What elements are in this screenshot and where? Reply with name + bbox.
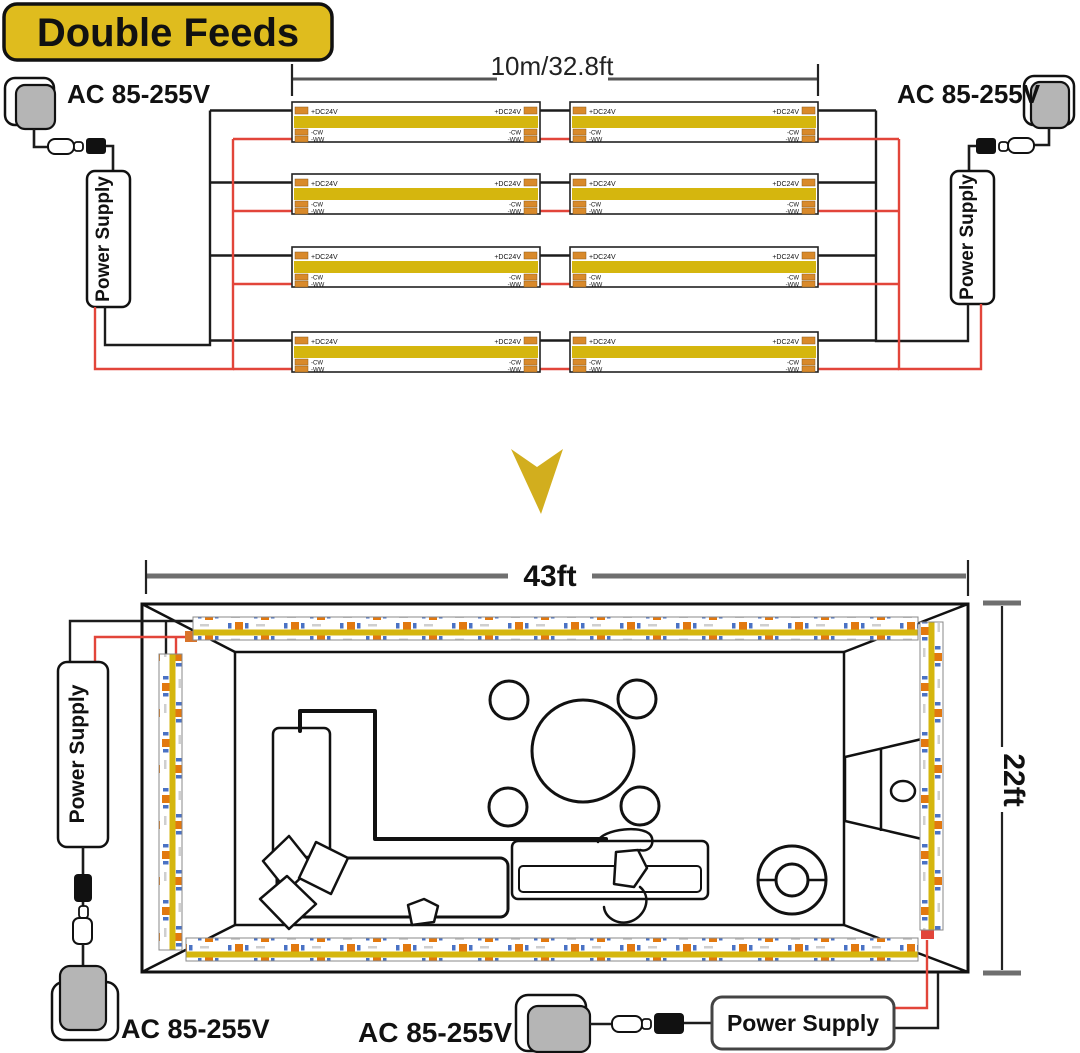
power-supply-bottom: Power Supply <box>712 997 894 1049</box>
dining-table <box>532 700 634 802</box>
power-supply-label-room-left: Power Supply <box>66 684 89 823</box>
led-strip-row4-left <box>292 332 540 374</box>
led-strip-row2-right <box>570 174 818 216</box>
dining-chair <box>621 787 659 825</box>
dining-chair <box>489 788 527 826</box>
power-supply-room-left: Power Supply <box>58 662 108 847</box>
power-supply-top-right: Power Supply <box>951 171 994 304</box>
dc-connector-bottom-center <box>590 1013 712 1034</box>
power-supply-top-left: Power Supply <box>87 171 130 307</box>
ac-adapter-icon-bottom-left <box>52 966 118 1040</box>
ac-voltage-label-bottom-left: AC 85-255V <box>121 1014 270 1044</box>
led-strip-row4-right <box>570 332 818 374</box>
room-width-dimension: 43ft <box>146 560 968 596</box>
right-wall-door <box>845 739 922 839</box>
led-strip-row1-left <box>292 102 540 144</box>
door-knob-icon <box>891 781 915 801</box>
led-strip-right-wall <box>920 622 943 930</box>
led-strip-row3-left <box>292 247 540 289</box>
tv-bench-inner <box>519 866 701 892</box>
strip-joint-wires <box>540 111 570 370</box>
led-strip-bottom-wall <box>186 938 918 961</box>
dimension-label-strip-length: 10m/32.8ft <box>491 51 615 81</box>
title-badge: Double Feeds <box>4 4 332 60</box>
dc-connector-top-right <box>969 128 1049 171</box>
led-strip-left-wall <box>159 654 182 950</box>
ac-voltage-label-top-right: AC 85-255V <box>897 79 1041 109</box>
room-furniture <box>260 680 826 929</box>
dining-chair <box>618 680 656 718</box>
strip-length-dimension: 10m/32.8ft <box>292 51 818 96</box>
power-supply-label-top-right: Power Supply <box>957 174 978 300</box>
diagram-canvas: +DC24V +DC24V -CW -WW -CW -WW <box>0 0 1080 1053</box>
round-ottoman <box>758 846 826 914</box>
power-supply-label-top-left: Power Supply <box>93 176 114 302</box>
ac-voltage-label-bottom-center: AC 85-255V <box>358 1017 512 1048</box>
room-installation-diagram: 43ft 22ft <box>52 560 1030 1052</box>
led-strip-row2-left <box>292 174 540 216</box>
ac-adapter-icon-bottom-center <box>516 995 590 1052</box>
top-wiring-diagram: 10m/32.8ft AC 85-255V Power Supply AC 85… <box>5 51 1074 374</box>
led-strip-top-wall <box>193 617 918 640</box>
ac-adapter-icon-top-left <box>5 78 55 129</box>
dining-chair <box>490 681 528 719</box>
dc-connector-bottom-left <box>73 847 92 967</box>
ac-voltage-label-top-left: AC 85-255V <box>67 79 211 109</box>
led-strip-wiring-diagram: +DC24V +DC24V -CW -WW -CW -WW <box>0 0 1080 1053</box>
led-strip-row1-right <box>570 102 818 144</box>
cabinet <box>273 728 330 857</box>
power-supply-label-bottom: Power Supply <box>727 1010 879 1036</box>
dimension-label-room-depth: 22ft <box>997 753 1030 806</box>
small-crumple <box>408 899 438 925</box>
dimension-label-room-width: 43ft <box>523 560 576 593</box>
title-text: Double Feeds <box>37 11 299 55</box>
dc-connector-top-left <box>34 129 113 171</box>
down-arrow-icon <box>511 449 563 514</box>
led-strip-row3-right <box>570 247 818 289</box>
room-depth-dimension: 22ft <box>983 603 1030 973</box>
